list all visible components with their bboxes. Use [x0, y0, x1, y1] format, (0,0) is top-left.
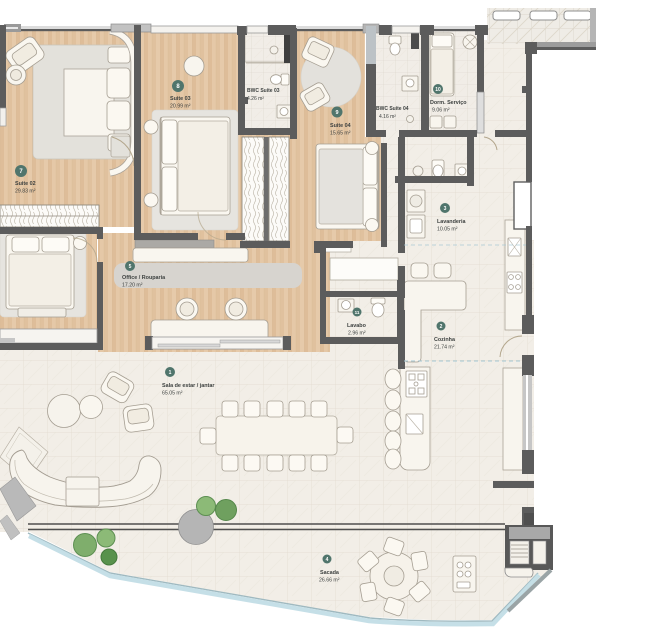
svg-text:Sala de estar / jantar: Sala de estar / jantar	[162, 383, 215, 389]
svg-text:Cozinha: Cozinha	[434, 337, 456, 343]
svg-text:BWC Suite 04: BWC Suite 04	[376, 106, 409, 112]
svg-text:Dorm. Serviço: Dorm. Serviço	[430, 100, 467, 106]
svg-text:29.83 m²: 29.83 m²	[15, 189, 36, 195]
svg-text:4: 4	[326, 557, 329, 563]
svg-text:9.06 m²: 9.06 m²	[432, 108, 450, 114]
svg-text:26.66 m²: 26.66 m²	[319, 578, 340, 584]
svg-text:9: 9	[335, 110, 338, 116]
svg-text:4.16 m²: 4.16 m²	[379, 114, 396, 120]
svg-text:Sacada: Sacada	[320, 570, 340, 576]
svg-text:5: 5	[129, 264, 132, 270]
svg-text:Lavabo: Lavabo	[347, 323, 367, 329]
svg-text:4.26 m²: 4.26 m²	[247, 96, 264, 102]
svg-text:21.74 m²: 21.74 m²	[434, 345, 455, 351]
svg-text:Suite 03: Suite 03	[170, 96, 191, 102]
svg-text:Suite 02: Suite 02	[15, 181, 36, 187]
svg-text:Suite 04: Suite 04	[330, 123, 351, 129]
svg-text:17.20 m²: 17.20 m²	[122, 283, 143, 289]
svg-text:Office / Rouparia: Office / Rouparia	[122, 275, 166, 281]
svg-text:20.99 m²: 20.99 m²	[170, 104, 191, 110]
svg-text:3: 3	[444, 206, 447, 212]
svg-text:BWC Suite 03: BWC Suite 03	[247, 88, 280, 94]
svg-text:10.05 m²: 10.05 m²	[437, 227, 458, 233]
svg-text:10: 10	[435, 87, 441, 93]
svg-text:15.65 m²: 15.65 m²	[330, 131, 351, 137]
svg-text:1: 1	[169, 370, 172, 376]
svg-text:Lavanderia: Lavanderia	[437, 219, 466, 225]
svg-text:2.96 m²: 2.96 m²	[348, 331, 366, 337]
svg-text:11: 11	[355, 310, 360, 315]
svg-text:65.05 m²: 65.05 m²	[162, 391, 183, 397]
svg-text:2: 2	[440, 324, 443, 330]
